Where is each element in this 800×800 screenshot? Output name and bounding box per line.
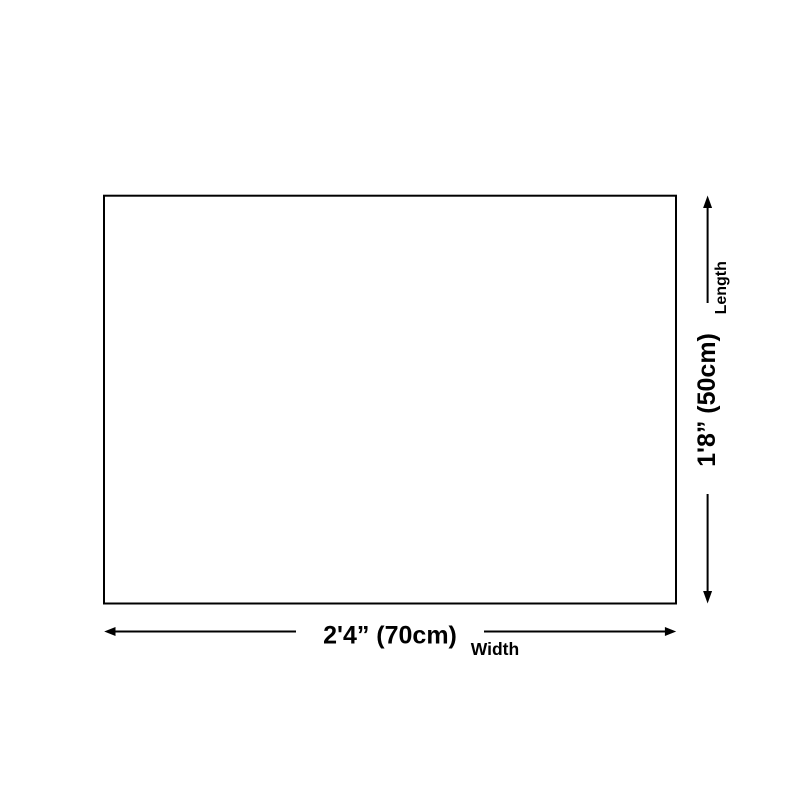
svg-text:1'8” (50cm): 1'8” (50cm) (693, 333, 721, 467)
svg-text:Length: Length (713, 261, 730, 314)
svg-text:Width: Width (471, 639, 519, 659)
svg-text:2'4” (70cm): 2'4” (70cm) (323, 622, 457, 650)
